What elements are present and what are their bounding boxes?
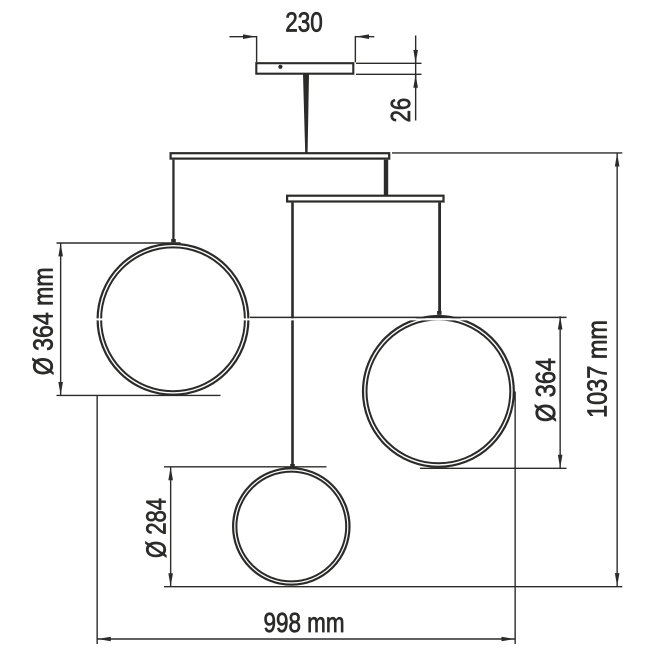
svg-text:Ø 364 mm: Ø 364 mm [28,267,59,375]
svg-text:26: 26 [385,98,416,123]
svg-text:998 mm: 998 mm [264,607,345,638]
svg-text:Ø 284: Ø 284 [141,498,172,558]
svg-text:1037 mm: 1037 mm [582,320,613,418]
svg-text:Ø 364: Ø 364 [530,358,561,422]
svg-text:230: 230 [285,6,323,37]
